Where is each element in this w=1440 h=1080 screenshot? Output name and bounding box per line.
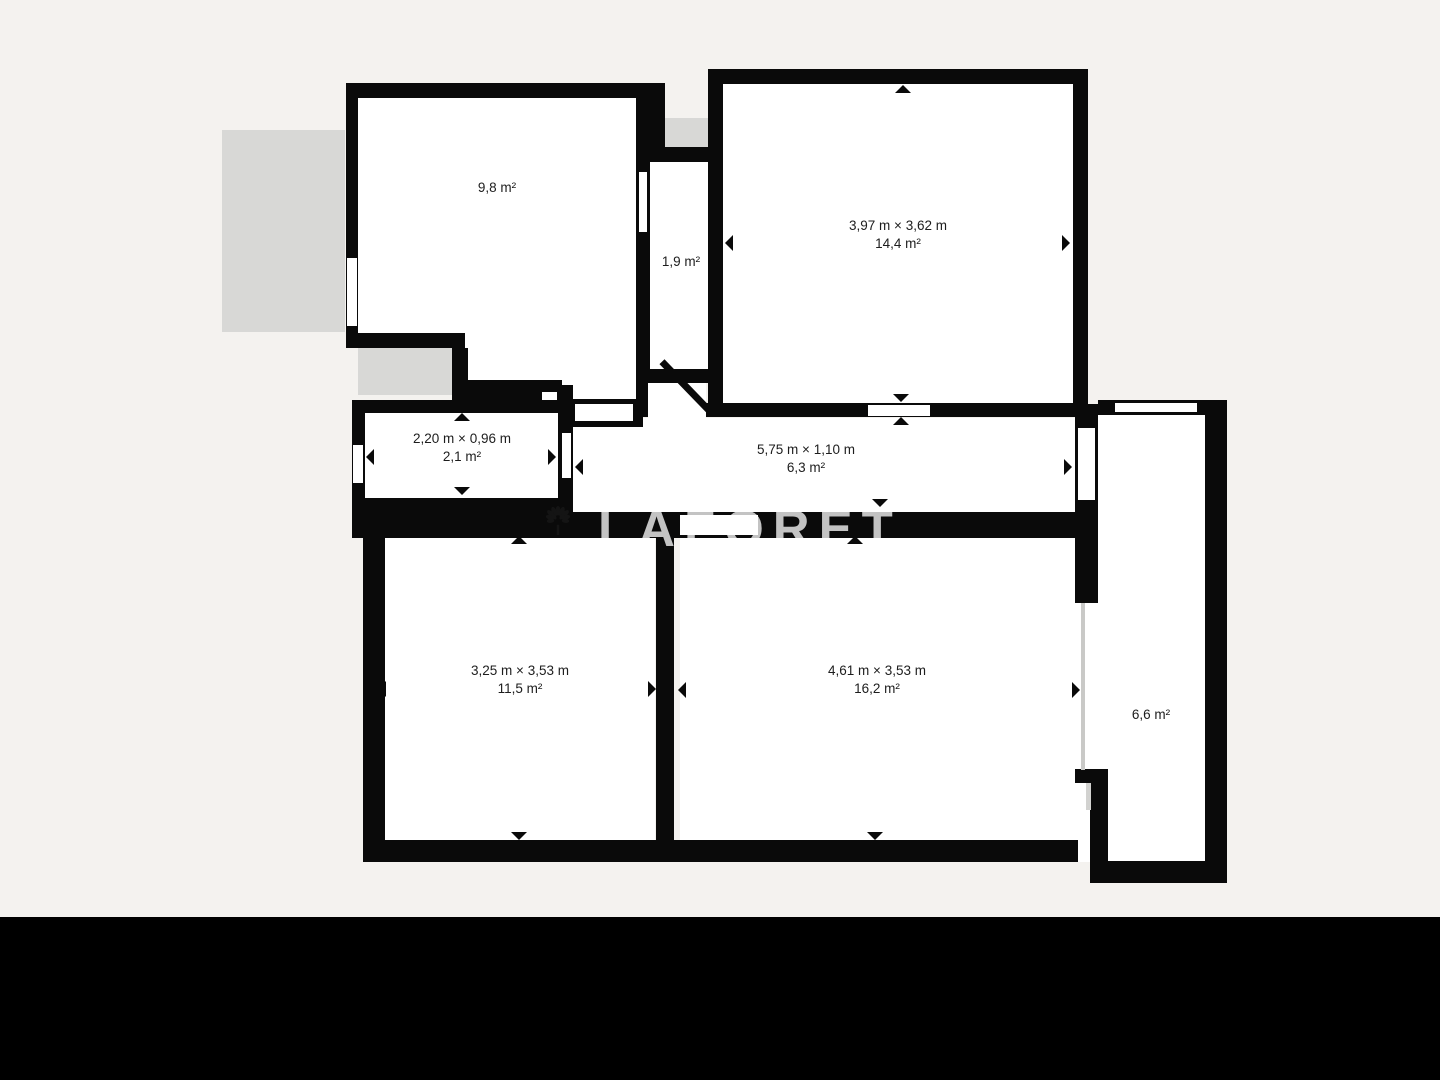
wall-segment	[1093, 861, 1227, 883]
dimension-arrow-left	[678, 682, 686, 698]
glass-partition-line	[1081, 603, 1085, 770]
dimension-arrow-right	[548, 449, 556, 465]
room-top-right-label: 3,97 m × 3,62 m 14,4 m²	[849, 217, 947, 253]
room-area: 16,2 m²	[854, 680, 900, 698]
window-slot	[1115, 403, 1197, 412]
window-slot	[542, 392, 557, 400]
room-area: 11,5 m²	[498, 680, 543, 698]
dimension-arrow-up	[893, 417, 909, 425]
dimension-arrow-right	[1064, 459, 1072, 475]
room-area: 2,1 m²	[443, 448, 481, 466]
dimension-arrow-up	[454, 413, 470, 421]
dimension-arrow-right	[1072, 682, 1080, 698]
room-bottom-right-label: 4,61 m × 3,53 m 16,2 m²	[828, 662, 926, 698]
room-area: 9,8 m²	[478, 179, 516, 197]
room-top-left-label: 9,8 m²	[478, 179, 516, 197]
room-dimensions: 4,61 m × 3,53 m	[828, 662, 926, 680]
room-bottom-left-label: 3,25 m × 3,53 m 11,5 m²	[471, 662, 569, 698]
dimension-arrow-down	[893, 394, 909, 402]
room-area: 14,4 m²	[875, 235, 921, 253]
dimension-arrow-down	[454, 487, 470, 495]
hallway-label: 5,75 m × 1,10 m 6,3 m²	[757, 441, 855, 477]
dimension-arrow-up	[847, 536, 863, 544]
wall-segment	[636, 98, 650, 403]
terrace-area	[358, 348, 452, 395]
door-opening	[868, 405, 930, 416]
room-top-left-floor	[560, 97, 638, 399]
dimension-arrow-left	[575, 459, 583, 475]
wall-segment	[1073, 69, 1088, 404]
room-dimensions: 3,97 m × 3,62 m	[849, 217, 947, 235]
wall-segment	[708, 69, 1088, 84]
wall-segment	[346, 83, 665, 98]
wall-segment	[363, 840, 1078, 862]
dimension-arrow-left	[366, 449, 374, 465]
room-dimensions: 2,20 m × 0,96 m	[413, 430, 511, 448]
room-dimensions: 3,25 m × 3,53 m	[471, 662, 569, 680]
room-area: 6,6 m²	[1132, 706, 1170, 724]
window-slot	[353, 445, 363, 483]
wall-segment	[1090, 769, 1108, 883]
dimension-arrow-up	[511, 536, 527, 544]
wall-segment	[656, 512, 674, 840]
room-bottom-right-floor	[1084, 603, 1098, 769]
window-slot	[639, 172, 647, 232]
terrace-area	[222, 130, 345, 332]
wall-segment	[346, 333, 465, 348]
dimension-arrow-left	[725, 235, 733, 251]
watermark-logo-box	[0, 0, 80, 34]
window-slot	[575, 404, 633, 421]
room-area: 1,9 m²	[662, 253, 700, 271]
dimension-arrow-right	[648, 681, 656, 697]
room-dimensions: 5,75 m × 1,10 m	[757, 441, 855, 459]
door-opening	[1078, 428, 1095, 500]
wall-segment	[708, 69, 723, 404]
wall-segment	[1205, 400, 1227, 883]
dimension-arrow-left	[378, 681, 386, 697]
room-area: 6,3 m²	[787, 459, 825, 477]
room-small-left-label: 2,20 m × 0,96 m 2,1 m²	[413, 430, 511, 466]
dimension-arrow-down	[867, 832, 883, 840]
right-annex-floor	[1098, 415, 1205, 861]
footer-bar	[0, 917, 1440, 1080]
dimension-arrow-up	[895, 85, 911, 93]
window-slot	[1086, 783, 1091, 810]
right-annex-label: 6,6 m²	[1132, 706, 1170, 724]
dimension-arrow-right	[1062, 235, 1070, 251]
window-slot	[347, 258, 357, 326]
dimension-arrow-down	[872, 499, 888, 507]
dimension-arrow-down	[511, 832, 527, 840]
tree-icon	[528, 505, 588, 537]
brand-watermark-text: LAFORÊT	[598, 502, 902, 556]
floor-plan: LAFORÊT 9,8 m² 1,9 m² 3,97 m × 3,62 m 14…	[0, 0, 1440, 1080]
closet-label: 1,9 m²	[662, 253, 700, 271]
door-opening	[562, 433, 571, 478]
